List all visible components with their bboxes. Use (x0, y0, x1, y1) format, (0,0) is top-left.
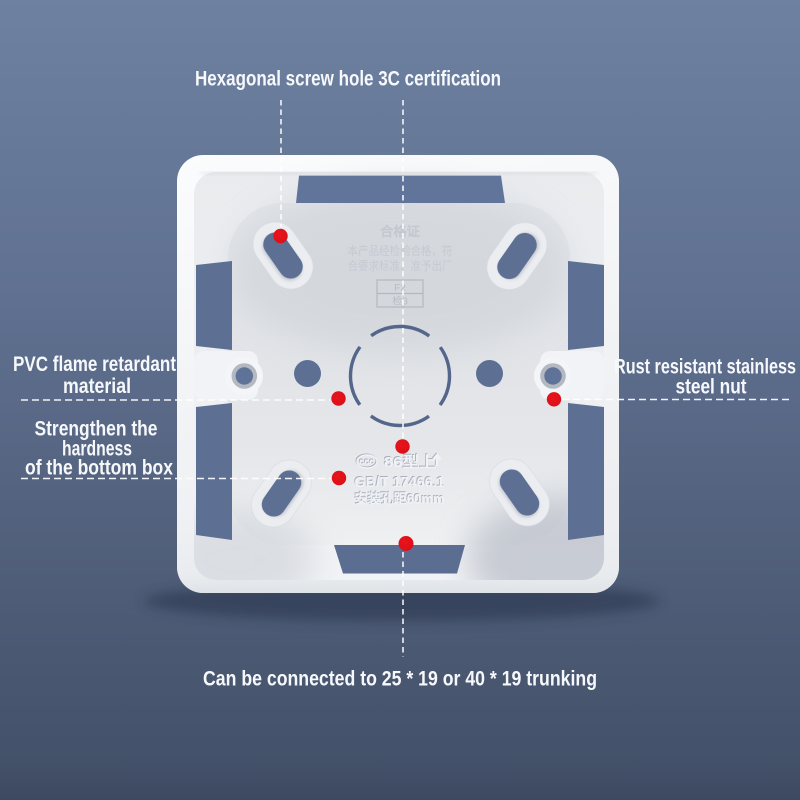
svg-text:GB/T 17466.1: GB/T 17466.1 (355, 475, 445, 491)
svg-text:material: material (63, 374, 131, 398)
svg-text:steel nut: steel nut (676, 375, 747, 399)
svg-text:检3: 检3 (392, 295, 408, 308)
svg-text:合格证: 合格证 (380, 224, 420, 239)
svg-text:PVC flame retardant: PVC flame retardant (13, 352, 176, 376)
svg-text:合要求标准、准予出厂: 合要求标准、准予出厂 (348, 258, 453, 273)
svg-text:F2: F2 (394, 283, 406, 294)
svg-text:Can be connected to 25 * 19 or: Can be connected to 25 * 19 or 40 * 19 t… (203, 667, 597, 691)
svg-text:CCC: CCC (359, 460, 374, 467)
svg-text:86型上: 86型上 (384, 453, 436, 471)
svg-text:本产品经检验合格，符: 本产品经检验合格，符 (348, 243, 453, 258)
svg-text:of the bottom box: of the bottom box (25, 456, 173, 480)
svg-text:安装孔距60mm: 安装孔距60mm (355, 491, 445, 507)
svg-text:Hexagonal screw hole 3C certif: Hexagonal screw hole 3C certification (195, 67, 501, 91)
